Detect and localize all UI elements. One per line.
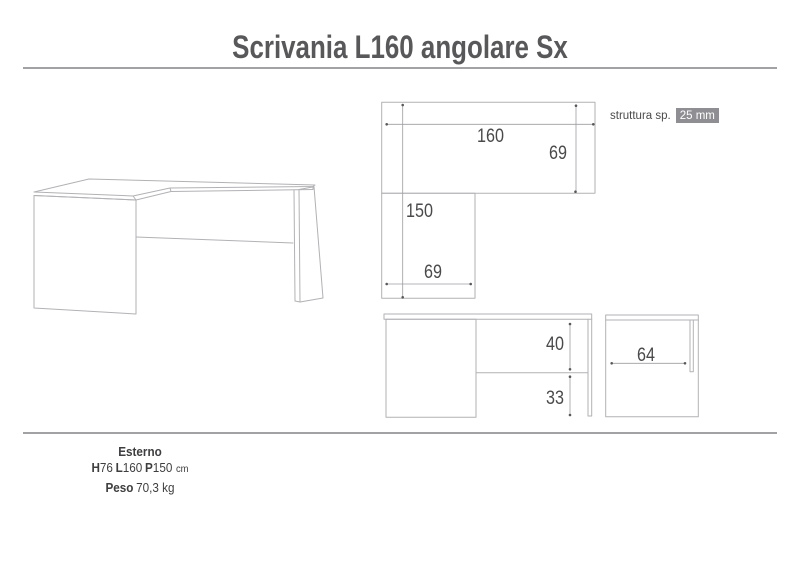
footer-divider	[23, 432, 777, 434]
dim-label-return-width: 69	[424, 263, 442, 282]
spec-length: L160	[116, 460, 143, 475]
dim-label-modesty-height: 40	[546, 335, 564, 354]
spec-depth: P150	[145, 460, 172, 475]
dim-label-clearance: 33	[546, 389, 564, 408]
specs-weight: Peso70,3 kg	[67, 480, 213, 495]
dim-label-side-inner-width: 64	[637, 346, 655, 365]
side-view-drawing	[600, 310, 705, 422]
specs-dimensions: H76L160P150cm	[67, 460, 213, 475]
dim-label-top-width: 160	[477, 127, 504, 146]
specs-block: Esterno H76L160P150cm Peso70,3 kg	[67, 444, 213, 495]
spec-height: H76	[91, 460, 112, 475]
desk-3d-drawing	[30, 175, 330, 325]
spec-sheet: Scrivania L160 angolare Sx	[0, 0, 800, 566]
dim-label-total-depth: 150	[406, 202, 433, 221]
page-title: Scrivania L160 angolare Sx	[76, 30, 724, 64]
weight-value: 70,3 kg	[136, 480, 174, 495]
structure-thickness-note: struttura sp. 25 mm	[610, 108, 719, 123]
weight-label: Peso	[105, 480, 133, 495]
structure-thickness-label: struttura sp.	[610, 110, 671, 122]
specs-heading: Esterno	[67, 444, 213, 459]
dim-label-top-depth: 69	[549, 144, 567, 163]
spec-unit: cm	[176, 463, 189, 475]
title-divider	[23, 67, 777, 69]
structure-thickness-value: 25 mm	[676, 108, 719, 123]
